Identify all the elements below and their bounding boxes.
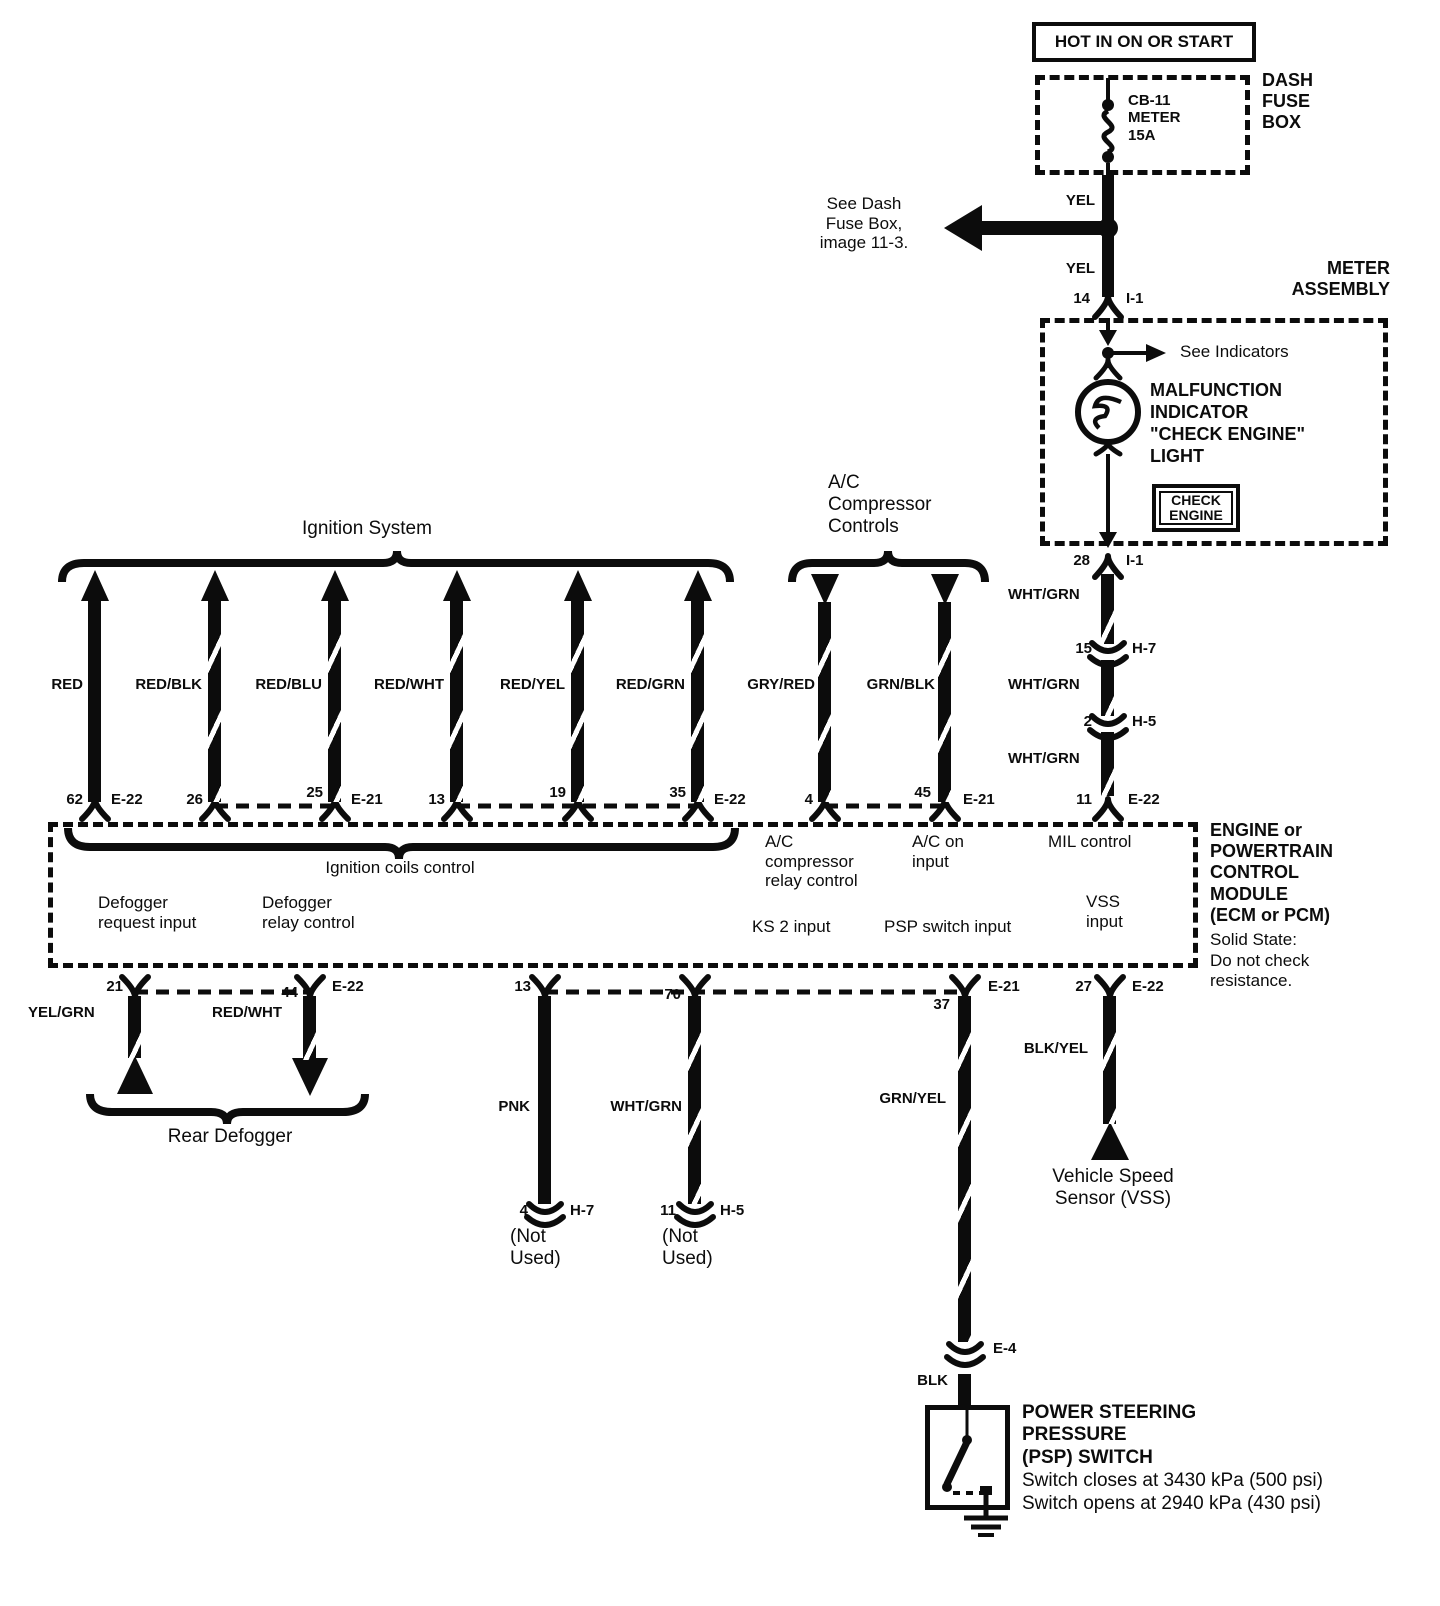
wire-redwht-bottom xyxy=(303,996,316,1060)
wire-label-redgrn: RED/GRN xyxy=(603,676,685,693)
wire-label-whtgrn-1: WHT/GRN xyxy=(1008,586,1080,603)
wire-label-redyel: RED/YEL xyxy=(483,676,565,693)
mil-light-label: MALFUNCTION INDICATOR "CHECK ENGINE" LIG… xyxy=(1150,380,1305,468)
defogger-relay-arrow xyxy=(292,1058,328,1096)
wire-whtgrn-2 xyxy=(1101,660,1114,716)
coils-control-label: Ignition coils control xyxy=(250,858,550,878)
rear-defogger-brace xyxy=(90,1094,365,1124)
psp-input-label: PSP switch input xyxy=(884,917,1011,937)
not-used-note-2: (Not Used) xyxy=(662,1226,713,1270)
conn-e22-ign1: E-22 xyxy=(111,791,143,808)
conn-e21-ac: E-21 xyxy=(963,791,995,808)
defog-relay-label: Defogger relay control xyxy=(262,893,355,932)
defog-request-label: Defogger request input xyxy=(98,893,196,932)
see-dash-note: See Dash Fuse Box, image 11-3. xyxy=(796,194,932,253)
wire-redyel xyxy=(571,598,584,802)
wire-redblk xyxy=(208,598,221,802)
wire-whtgrn-4 xyxy=(688,996,701,1204)
conn-e21-psp: E-21 xyxy=(988,978,1020,995)
conn-e4: E-4 xyxy=(993,1340,1016,1357)
conn-e22-mil: E-22 xyxy=(1128,791,1160,808)
defogger-request-arrow xyxy=(117,1056,153,1094)
pin-4-ac: 4 xyxy=(775,791,813,808)
ignition-system-title: Ignition System xyxy=(302,518,432,540)
wire-whtgrn-3 xyxy=(1101,732,1114,796)
conn-h7: H-7 xyxy=(1132,640,1156,657)
ignition-brace xyxy=(62,551,730,582)
wire-redgrn xyxy=(691,598,704,802)
ecm-note: Solid State: Do not check resistance. xyxy=(1210,930,1309,992)
ac-arrowheads xyxy=(811,574,959,605)
pin-25: 25 xyxy=(283,784,323,801)
wire-label-blkyel: BLK/YEL xyxy=(1004,1040,1088,1057)
wire-label-blk: BLK xyxy=(903,1372,948,1389)
wire-pnk xyxy=(538,996,551,1204)
connector-e4-icon xyxy=(947,1344,983,1365)
psp-note-close: Switch closes at 3430 kPa (500 psi) xyxy=(1022,1470,1323,1492)
wire-label-redwht-b: RED/WHT xyxy=(212,1004,282,1021)
wire-yel xyxy=(1102,175,1114,297)
conn-e21-ign: E-21 xyxy=(351,791,383,808)
ecm-box xyxy=(48,822,1198,968)
pin-13-bottom: 13 xyxy=(491,978,531,995)
pin-4-end: 4 xyxy=(500,1202,528,1219)
wire-label-pnk: PNK xyxy=(480,1098,530,1115)
conn-h5: H-5 xyxy=(1132,713,1156,730)
vss-input-label: VSS input xyxy=(1086,892,1123,931)
conn-e22-ign6: E-22 xyxy=(714,791,746,808)
psp-note-open: Switch opens at 2940 kPa (430 psi) xyxy=(1022,1493,1321,1515)
pin-2: 2 xyxy=(1042,713,1092,730)
dash-fuse-box-name: DASH FUSE BOX xyxy=(1262,70,1313,133)
wire-blkyel xyxy=(1103,996,1116,1124)
wire-label-grnblk: GRN/BLK xyxy=(853,676,935,693)
pin-45: 45 xyxy=(893,784,931,801)
wire-red xyxy=(88,598,101,802)
wire-label-redwht: RED/WHT xyxy=(362,676,444,693)
ac-on-label: A/C on input xyxy=(912,832,964,871)
vss-arrow xyxy=(1091,1122,1129,1160)
breaker-label: CB-11 METER 15A xyxy=(1128,92,1181,144)
wire-label-yel-upper: YEL xyxy=(1020,192,1095,209)
wire-label-yel-lower: YEL xyxy=(1020,260,1095,277)
wire-label-whtgrn-4: WHT/GRN xyxy=(598,1098,682,1115)
wire-label-redblk: RED/BLK xyxy=(120,676,202,693)
ks2-label: KS 2 input xyxy=(752,917,830,937)
pin-70: 70 xyxy=(641,986,681,1003)
wire-label-yelgrn: YEL/GRN xyxy=(28,1004,95,1021)
pin-37: 37 xyxy=(910,996,950,1013)
wire-label-red: RED xyxy=(5,676,83,693)
conn-e22-defog: E-22 xyxy=(332,978,364,995)
ecm-name: ENGINE or POWERTRAIN CONTROL MODULE (ECM… xyxy=(1210,820,1333,926)
meter-assembly-name: METER ASSEMBLY xyxy=(1240,258,1390,300)
ignition-arrowheads xyxy=(81,570,712,601)
wire-label-whtgrn-3: WHT/GRN xyxy=(1008,750,1080,767)
pin-14: 14 xyxy=(1036,290,1090,307)
pin-27: 27 xyxy=(1052,978,1092,995)
psp-switch-box xyxy=(925,1405,1010,1510)
wire-yelgrn xyxy=(128,996,141,1058)
wire-label-whtgrn-2: WHT/GRN xyxy=(1008,676,1080,693)
ac-controls-title: A/C Compressor Controls xyxy=(828,472,931,538)
pin-26: 26 xyxy=(163,791,203,808)
conn-e22-vss: E-22 xyxy=(1132,978,1164,995)
pin-13-ign: 13 xyxy=(405,791,445,808)
wire-redwht-top xyxy=(450,598,463,802)
hot-label: HOT IN ON OR START xyxy=(1055,32,1233,52)
left-arrow-icon xyxy=(944,205,1104,251)
wire-redblu xyxy=(328,598,341,802)
psp-name: POWER STEERING PRESSURE (PSP) SWITCH xyxy=(1022,1402,1196,1469)
ac-relay-label: A/C compressor relay control xyxy=(765,832,858,891)
not-used-note-1: (Not Used) xyxy=(510,1226,561,1270)
connector-fork-14 xyxy=(1095,296,1121,317)
conn-h7-end: H-7 xyxy=(570,1202,594,1219)
pin-35: 35 xyxy=(646,784,686,801)
see-indicators-note: See Indicators xyxy=(1180,342,1289,362)
pin-44: 44 xyxy=(258,984,298,1001)
pin-28: 28 xyxy=(1036,552,1090,569)
wire-label-redblu: RED/BLU xyxy=(240,676,322,693)
check-engine-badge-text: CHECK ENGINE xyxy=(1159,491,1233,525)
wire-blk xyxy=(958,1374,971,1406)
vss-label: Vehicle Speed Sensor (VSS) xyxy=(1028,1166,1198,1210)
connector-h7-end-icon xyxy=(527,1204,563,1225)
ac-brace xyxy=(792,551,985,582)
pin-62: 62 xyxy=(43,791,83,808)
pin-11-end: 11 xyxy=(644,1202,676,1219)
conn-h5-end: H-5 xyxy=(720,1202,744,1219)
conn-i1: I-1 xyxy=(1126,290,1144,307)
check-engine-badge: CHECK ENGINE xyxy=(1152,484,1240,532)
pin-19: 19 xyxy=(526,784,566,801)
wiring-diagram: HOT IN ON OR START CHECK ENGINE DASH FUS… xyxy=(0,0,1440,1606)
mil-control-label: MIL control xyxy=(1048,832,1131,852)
wire-label-gryred: GRY/RED xyxy=(733,676,815,693)
hot-in-on-or-start-box: HOT IN ON OR START xyxy=(1032,22,1256,62)
conn-i1-b: I-1 xyxy=(1126,552,1144,569)
pin-15: 15 xyxy=(1042,640,1092,657)
wire-grnblk xyxy=(938,602,951,802)
wire-whtgrn-1 xyxy=(1101,574,1114,644)
wire-grnyel xyxy=(958,996,971,1342)
connector-h5-end-icon xyxy=(677,1204,713,1225)
rear-defogger-title: Rear Defogger xyxy=(140,1126,320,1148)
wire-gryred xyxy=(818,602,831,802)
pin-11-mil: 11 xyxy=(1048,791,1092,808)
pin-21: 21 xyxy=(83,978,123,995)
wire-label-grnyel: GRN/YEL xyxy=(860,1090,946,1107)
